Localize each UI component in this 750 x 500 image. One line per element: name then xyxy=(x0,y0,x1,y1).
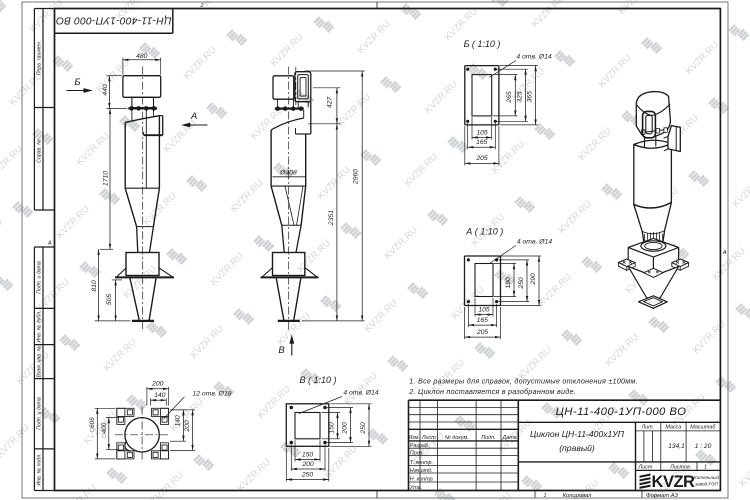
svg-text:Котельный: Котельный xyxy=(694,474,719,480)
svg-text:Пров.: Пров. xyxy=(410,451,424,457)
svg-text:2960: 2960 xyxy=(353,169,360,185)
svg-text:140: 140 xyxy=(154,392,166,399)
svg-text:Т. контр.: Т. контр. xyxy=(410,460,433,466)
svg-text:А: А xyxy=(722,250,727,256)
svg-text:Нач.отд.: Нач.отд. xyxy=(410,468,433,474)
svg-text:190: 190 xyxy=(505,277,512,289)
svg-text:Листов: Листов xyxy=(669,465,690,471)
svg-text:12 отв. Ø18: 12 отв. Ø18 xyxy=(192,390,231,397)
svg-text:Масса: Масса xyxy=(665,425,681,431)
svg-text:А ( 1:10 ): А ( 1:10 ) xyxy=(465,227,503,237)
svg-text:105: 105 xyxy=(476,129,488,136)
svg-text:Б ( 1:10 ): Б ( 1:10 ) xyxy=(464,39,501,49)
svg-text:150: 150 xyxy=(302,451,314,458)
svg-text:1710: 1710 xyxy=(103,171,110,186)
svg-text:4 отв. Ø14: 4 отв. Ø14 xyxy=(516,54,552,61)
svg-text:ЦН-11-400-1УП-000 ВО: ЦН-11-400-1УП-000 ВО xyxy=(556,406,687,418)
svg-text:1: 1 xyxy=(543,493,546,499)
svg-text:Инв. № дубл.: Инв. № дубл. xyxy=(37,311,43,343)
svg-text:4 отв. Ø14: 4 отв. Ø14 xyxy=(517,239,553,246)
svg-text:325: 325 xyxy=(517,91,524,103)
svg-text:Разраб.: Разраб. xyxy=(410,443,430,449)
svg-text:Перв. примен.: Перв. примен. xyxy=(37,41,43,75)
svg-text:2. Циклон поставляется в разоб: 2. Циклон поставляется в разобранном вид… xyxy=(408,387,576,396)
svg-text:Формат А3: Формат А3 xyxy=(646,493,678,499)
svg-text:завод РЭП: завод РЭП xyxy=(694,482,719,487)
svg-text:В ( 1:10 ): В ( 1:10 ) xyxy=(299,375,336,385)
svg-text:Лист: Лист xyxy=(638,465,653,471)
svg-text:105: 105 xyxy=(478,306,490,313)
svg-text:В: В xyxy=(278,345,285,356)
svg-text:Взам. инв. №: Взам. инв. № xyxy=(37,345,43,377)
svg-text:200: 200 xyxy=(184,420,191,433)
svg-text:2: 2 xyxy=(199,3,203,9)
svg-text:265: 265 xyxy=(506,91,513,104)
svg-text:365: 365 xyxy=(527,91,534,103)
svg-text:4 отв. Ø14: 4 отв. Ø14 xyxy=(343,390,379,397)
svg-text:810: 810 xyxy=(91,280,98,292)
svg-text:200: 200 xyxy=(151,381,164,388)
svg-text:505: 505 xyxy=(106,294,113,306)
svg-text:Ø408: Ø408 xyxy=(279,170,297,177)
svg-text:1. Все размеры для справок, до: 1. Все размеры для справок, допустимые о… xyxy=(409,377,638,386)
svg-text:Подп. и дата: Подп. и дата xyxy=(37,261,43,294)
svg-text:1 : 20: 1 : 20 xyxy=(695,443,712,450)
svg-text:250: 250 xyxy=(518,277,525,290)
svg-text:200: 200 xyxy=(301,461,314,468)
svg-text:ЦН-11-400-1УП-000 ВО: ЦН-11-400-1УП-000 ВО xyxy=(56,14,172,25)
svg-text:440: 440 xyxy=(102,84,109,96)
svg-text:1: 1 xyxy=(704,465,707,471)
svg-text:290: 290 xyxy=(530,273,537,286)
svg-text:А: А xyxy=(47,241,52,247)
svg-text:Н. контр.: Н. контр. xyxy=(410,477,434,483)
svg-text:Утв.: Утв. xyxy=(409,485,422,491)
svg-text:2351: 2351 xyxy=(328,210,335,226)
svg-text:Подп. и дата: Подп. и дата xyxy=(37,397,43,430)
svg-text:Лист: Лист xyxy=(421,435,436,441)
svg-text:480: 480 xyxy=(136,53,148,60)
svg-text:№ докум.: № докум. xyxy=(445,435,469,441)
svg-text:205: 205 xyxy=(476,329,489,336)
svg-text:205: 205 xyxy=(475,155,488,162)
svg-text:Справ. №: Справ. № xyxy=(37,139,43,163)
svg-text:Масштаб: Масштаб xyxy=(690,425,716,431)
svg-text:250: 250 xyxy=(301,471,314,478)
svg-text:Изм.: Изм. xyxy=(408,435,420,441)
svg-text:□606: □606 xyxy=(89,417,96,432)
svg-text:Инв. № подл.: Инв. № подл. xyxy=(37,453,43,485)
svg-text:Лит.: Лит. xyxy=(640,425,654,431)
svg-text:150: 150 xyxy=(329,422,336,434)
svg-text:250: 250 xyxy=(360,422,367,435)
svg-text:KVZR: KVZR xyxy=(652,473,696,491)
svg-text:Дата: Дата xyxy=(501,435,516,441)
svg-text:Копировал: Копировал xyxy=(563,493,593,499)
svg-text:(правый): (правый) xyxy=(559,443,595,453)
svg-text:134,1: 134,1 xyxy=(668,443,685,450)
svg-text:Подп.: Подп. xyxy=(481,435,495,441)
svg-text:200: 200 xyxy=(341,422,348,435)
svg-text:А: А xyxy=(190,111,197,122)
svg-text:Б: Б xyxy=(74,77,80,88)
svg-text:165: 165 xyxy=(477,317,489,324)
svg-text:140: 140 xyxy=(175,415,182,427)
svg-text:165: 165 xyxy=(476,139,488,146)
svg-text:□400: □400 xyxy=(101,422,108,437)
svg-text:Циклон ЦН-11-400х1УП: Циклон ЦН-11-400х1УП xyxy=(530,429,625,439)
svg-text:427: 427 xyxy=(327,97,334,109)
